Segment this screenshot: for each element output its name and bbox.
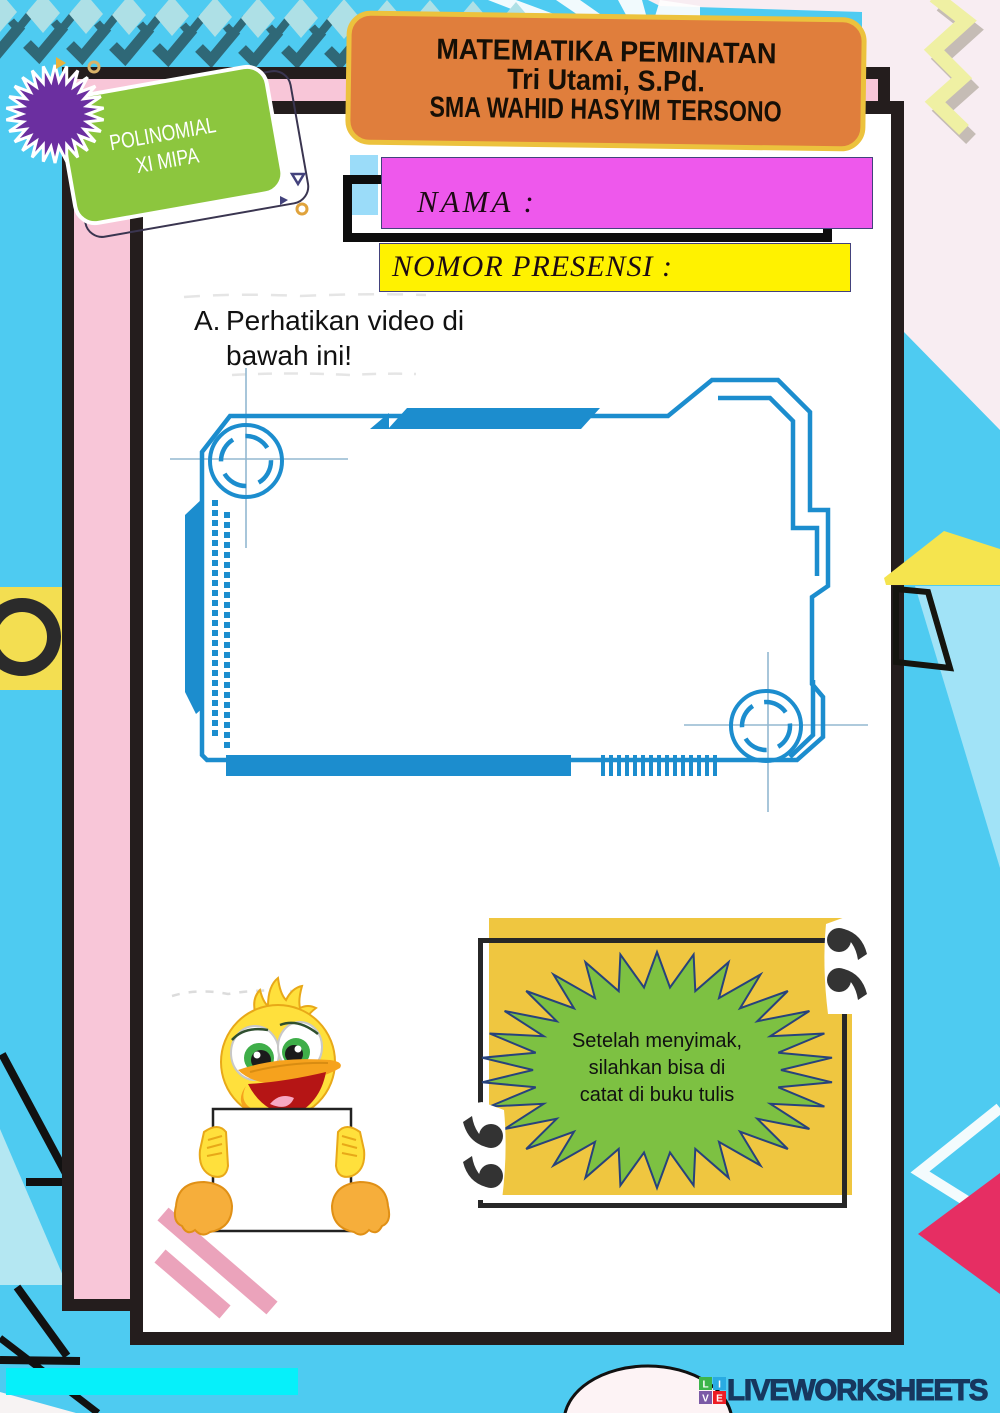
svg-text:I: I: [718, 1380, 721, 1391]
svg-text:L: L: [702, 1380, 708, 1391]
svg-text:V: V: [702, 1394, 709, 1405]
svg-text:E: E: [716, 1394, 723, 1405]
